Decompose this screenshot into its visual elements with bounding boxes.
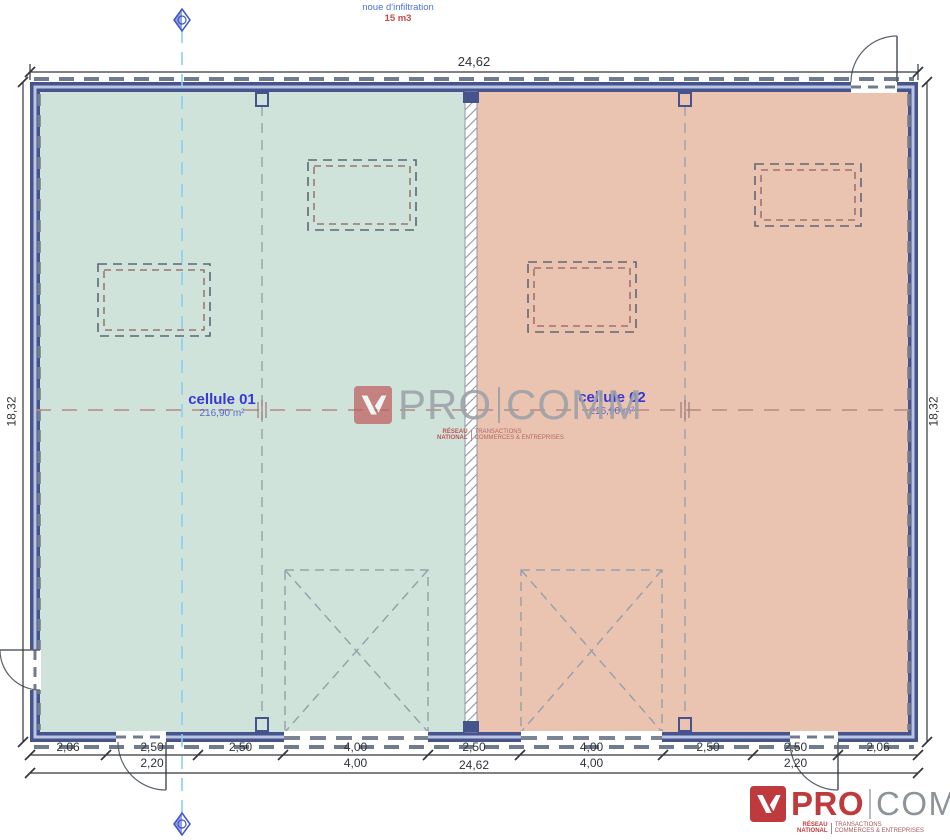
logo-tagline: RÉSEAU NATIONAL TRANSACTIONS COMMERCES &… bbox=[797, 822, 924, 834]
logo-pro: PRO bbox=[791, 787, 864, 821]
floor-plan: noue d'infiltration 15 m3 cellule 01 216… bbox=[0, 0, 950, 840]
infiltration-note-volume: 15 m3 bbox=[318, 13, 478, 24]
dim-segment-label: 2,50 bbox=[219, 741, 263, 754]
watermark-divider bbox=[498, 387, 500, 423]
dim-segment-label: 2,06 bbox=[46, 741, 90, 754]
dim-segment-label: 2,06 bbox=[856, 741, 900, 754]
skylights bbox=[98, 160, 861, 336]
cell-01-label: cellule 01 216,90 m² bbox=[157, 392, 287, 420]
watermark-tagline: RÉSEAU NATIONAL TRANSACTIONS COMMERCES &… bbox=[437, 429, 564, 441]
dim-segment-sublabel: 2,20 bbox=[774, 757, 818, 770]
dim-segment-label: 2,50 bbox=[452, 741, 496, 754]
dim-segment-sublabel: 4,00 bbox=[334, 757, 378, 770]
logo-divider bbox=[869, 789, 871, 819]
dim-segment-label: 4,00 bbox=[334, 741, 378, 754]
watermark: PRO COMM bbox=[354, 384, 643, 426]
dim-segment-label: 2,50 bbox=[686, 741, 730, 754]
infiltration-note-text: noue d'infiltration bbox=[318, 2, 478, 13]
dim-segment-label: 2,50 bbox=[774, 741, 818, 754]
procomm-mark-icon bbox=[750, 786, 786, 822]
logo-comm: COMM bbox=[876, 787, 950, 821]
dim-segment-label: 4,00 bbox=[570, 741, 614, 754]
dim-segment-sublabel: 4,00 bbox=[570, 757, 614, 770]
dim-top-total: 24,62 bbox=[434, 55, 514, 68]
benchmark-icon bbox=[174, 9, 190, 31]
dim-right-height: 18,32 bbox=[928, 390, 941, 434]
procomm-mark-icon bbox=[354, 386, 392, 424]
procomm-logo: PRO COMM bbox=[750, 786, 950, 822]
dim-left-height: 18,32 bbox=[6, 390, 19, 434]
dim-segment-label: 2,50 bbox=[130, 741, 174, 754]
dim-bottom-total: 24,62 bbox=[434, 759, 514, 772]
dim-segment-sublabel: 2,20 bbox=[130, 757, 174, 770]
watermark-comm: COMM bbox=[506, 384, 643, 426]
benchmark-icon bbox=[174, 813, 190, 835]
watermark-pro: PRO bbox=[398, 384, 492, 426]
infiltration-note: noue d'infiltration 15 m3 bbox=[318, 2, 478, 24]
